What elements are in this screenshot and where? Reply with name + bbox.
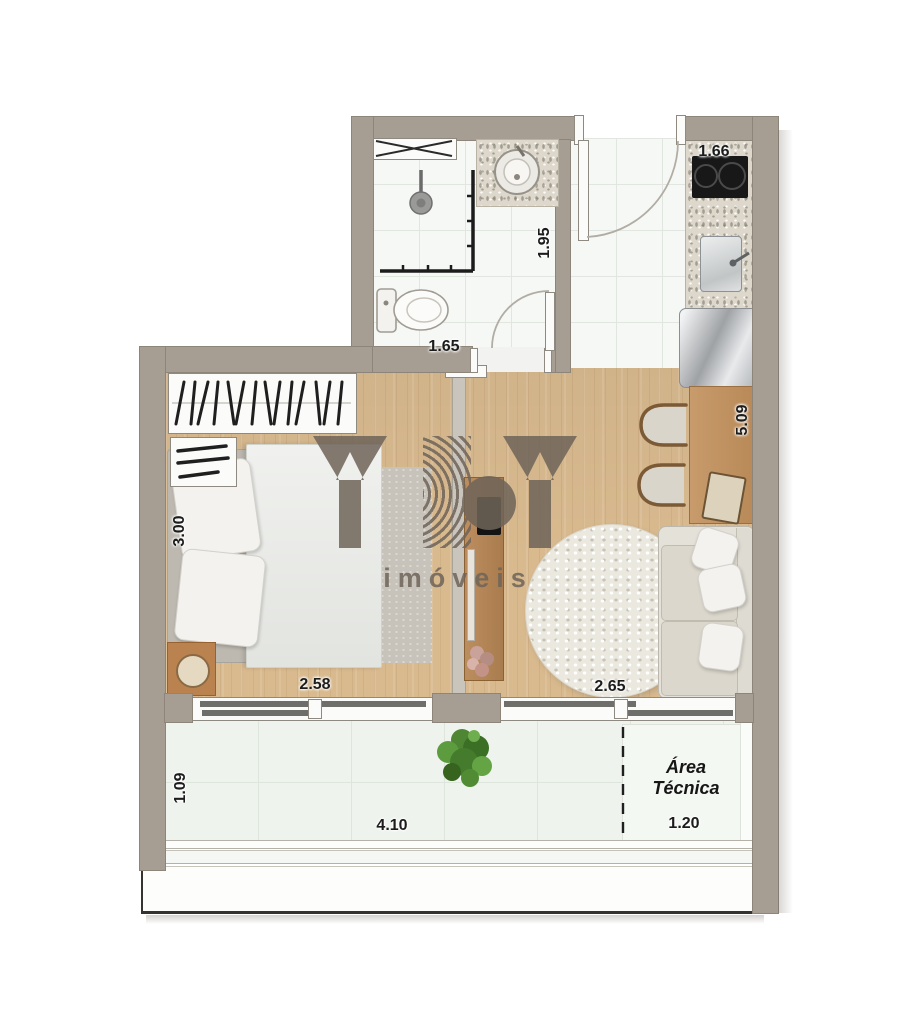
shower-enclosure — [380, 170, 473, 271]
entry-door-arc — [587, 141, 678, 237]
console-plant — [467, 646, 494, 677]
dim-bedroom-depth: 3.00 — [170, 501, 190, 561]
dim-balcony-width: 4.10 — [362, 816, 422, 836]
technical-area-label-line2: Técnica — [636, 778, 736, 799]
wardrobe-shelf-items — [178, 446, 228, 477]
dim-technical-area-width: 1.20 — [654, 814, 714, 834]
window-x-icon — [376, 141, 452, 156]
dim-bathroom-width: 1.65 — [414, 337, 474, 357]
shower-head-icon — [410, 170, 432, 214]
bathroom-sink — [495, 146, 539, 194]
wardrobe-hangers — [172, 382, 351, 424]
dim-living-width: 2.65 — [580, 677, 640, 697]
technical-area-label: Área Técnica — [636, 757, 736, 799]
floor-plan: 1.66 1.95 1.65 3.00 2.58 5.09 2.65 1.09 … — [0, 0, 915, 1024]
kitchen-faucet-icon — [730, 253, 750, 267]
technical-area-label-line1: Área — [636, 757, 736, 778]
dim-bathroom-depth: 1.95 — [535, 213, 555, 273]
cooktop-burners — [695, 163, 745, 189]
dining-chair — [641, 405, 686, 445]
toilet — [377, 289, 448, 332]
wall-shadow — [778, 130, 793, 913]
dim-bedroom-width: 2.58 — [285, 675, 345, 695]
bathroom-door-arc — [492, 291, 549, 348]
dim-balcony-depth: 1.09 — [171, 758, 191, 818]
railing-shadow — [146, 915, 764, 924]
dining-chair — [639, 465, 684, 505]
dim-kitchen-width: 1.66 — [684, 142, 744, 162]
dim-living-depth: 5.09 — [733, 390, 753, 450]
balcony-plant — [437, 729, 492, 787]
